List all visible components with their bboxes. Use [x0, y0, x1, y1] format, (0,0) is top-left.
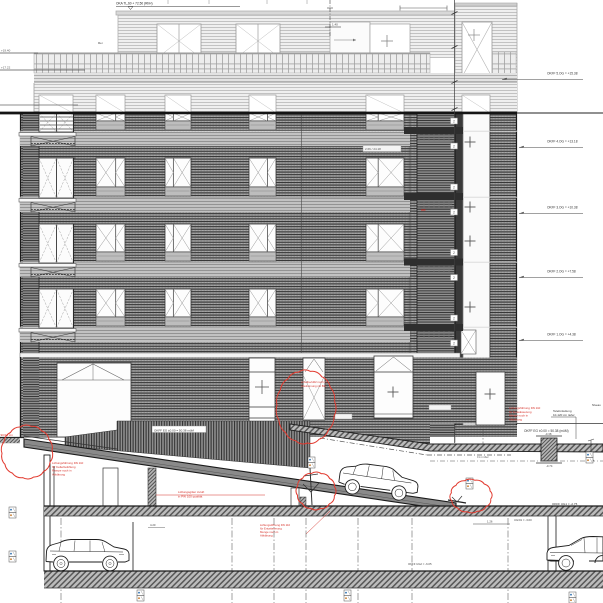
svg-text:4.20: 4.20 [150, 523, 156, 527]
svg-text:OKFF 3.OG = +10.38: OKFF 3.OG = +10.38 [547, 206, 578, 210]
svg-text:2.66 / 24.18: 2.66 / 24.18 [365, 147, 381, 151]
svg-text:2: 2 [453, 186, 455, 190]
svg-text:2: 2 [453, 120, 455, 124]
svg-text:1.40: 1.40 [332, 23, 338, 27]
svg-text:OKFF EG ±0.00 = 50.38 müM: OKFF EG ±0.00 = 50.38 müM [154, 428, 194, 432]
svg-text:2: 2 [453, 251, 455, 255]
svg-text:Rei: Rei [98, 41, 103, 45]
svg-text:±1 m über: ±1 m über [477, 455, 489, 459]
svg-text:2: 2 [453, 342, 455, 346]
svg-text:2: 2 [453, 276, 455, 280]
svg-text:Lüftungsgitter zuluft: Lüftungsgitter zuluft [178, 490, 204, 494]
svg-text:Abklärung: Abklärung [260, 534, 273, 538]
svg-text:2: 2 [453, 317, 455, 321]
svg-text:Abklärung: Abklärung [509, 417, 522, 421]
svg-text:+19.40: +19.40 [1, 49, 11, 53]
svg-text:10-120 cm tiefer: 10-120 cm tiefer [553, 413, 575, 417]
svg-text:1.26: 1.26 [487, 520, 493, 524]
svg-text:2: 2 [453, 211, 455, 215]
svg-text:OKA TL,60 + 72.50 (RhH): OKA TL,60 + 72.50 (RhH) [116, 2, 153, 6]
svg-text:UG/01 = -3.00: UG/01 = -3.00 [514, 518, 532, 522]
svg-text:OKFF 5.OG = +15.38: OKFF 5.OG = +15.38 [547, 72, 578, 76]
svg-text:Abklärung: Abklärung [52, 472, 65, 476]
svg-text:+17.22: +17.22 [1, 66, 11, 70]
svg-text:-0.38: -0.38 [545, 432, 552, 436]
svg-text:2: 2 [453, 145, 455, 149]
svg-text:OKFF UG2 = -6.05: OKFF UG2 = -6.05 [408, 562, 432, 566]
svg-text:OKFF 2.OG = +7.58: OKFF 2.OG = +7.58 [547, 270, 576, 274]
svg-text:OKFF 1.OG = +4.38: OKFF 1.OG = +4.38 [547, 333, 576, 337]
svg-text:Abstimmung mit BH: Abstimmung mit BH [301, 384, 326, 388]
svg-text:in PW 100 qualität: in PW 100 qualität [178, 495, 203, 499]
svg-text:-0.74: -0.74 [546, 464, 553, 468]
svg-text:OKFF 4.OG = +13.18: OKFF 4.OG = +13.18 [547, 140, 578, 144]
svg-text:OKFF UG1 = -2.75: OKFF UG1 = -2.75 [552, 502, 578, 506]
svg-text:Niveau: Niveau [592, 403, 601, 407]
